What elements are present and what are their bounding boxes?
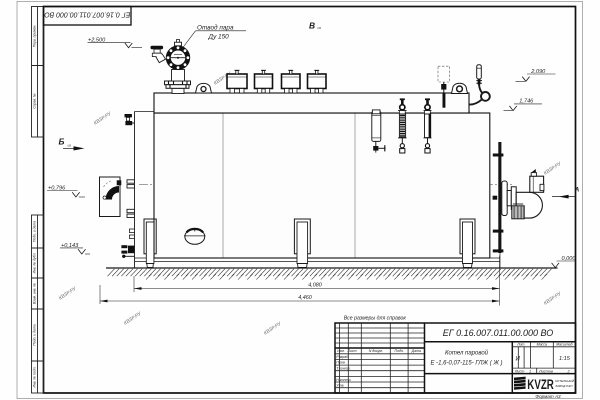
svg-text:Инв. № дубл.: Инв. № дубл. [32, 253, 36, 274]
svg-text:А: А [574, 186, 580, 193]
svg-text:KVZR: KVZR [527, 377, 554, 392]
svg-text:Н.контр.: Н.контр. [336, 378, 351, 382]
svg-text:Инв. № подл.: Инв. № подл. [32, 366, 36, 387]
svg-text:Утв.: Утв. [336, 383, 344, 387]
svg-text:Листов: Листов [538, 369, 553, 373]
svg-text:Дата: Дата [411, 349, 421, 353]
svg-text:И: И [516, 357, 521, 363]
svg-text:Пров.: Пров. [336, 361, 345, 365]
svg-text:Справ. №: Справ. № [32, 93, 36, 109]
svg-text:Подп. и дата: Подп. и дата [32, 324, 36, 345]
svg-text:Ду 150: Ду 150 [208, 34, 230, 41]
svg-text:КОТЕЛЬНЫЙ: КОТЕЛЬНЫЙ [555, 379, 575, 383]
svg-text:Перв. примен.: Перв. примен. [32, 25, 36, 48]
svg-text:Взам. инв. №: Взам. инв. № [32, 283, 36, 304]
svg-text:1:15: 1:15 [559, 356, 571, 362]
svg-text:1: 1 [529, 369, 531, 373]
svg-text:Подп. и дата: Подп. и дата [32, 221, 36, 242]
svg-text:Подп.: Подп. [395, 349, 404, 353]
svg-text:Лист: Лист [514, 369, 525, 373]
svg-text:4,080: 4,080 [308, 283, 322, 289]
svg-text:Масса: Масса [537, 343, 547, 347]
svg-text:Лист: Лист [346, 349, 356, 353]
svg-text:Б: Б [59, 137, 65, 147]
svg-text:Формат А3: Формат А3 [535, 394, 561, 399]
svg-text:В: В [309, 21, 315, 31]
svg-text:Разраб.: Разраб. [336, 355, 349, 359]
svg-text:Е -1,6-0,07-115- ГЛЖ ( Ж ): Е -1,6-0,07-115- ГЛЖ ( Ж ) [430, 361, 502, 367]
svg-text:Т.контр.: Т.контр. [336, 366, 351, 370]
svg-text:4,460: 4,460 [298, 295, 312, 301]
svg-text:Масштаб: Масштаб [556, 343, 573, 347]
svg-text:ЕГ 0.16.007.011.00.000 ВО: ЕГ 0.16.007.011.00.000 ВО [44, 11, 131, 18]
svg-text:Отвод пара: Отвод пара [197, 23, 234, 31]
svg-text:Котел паровой: Котел паровой [445, 350, 489, 357]
svg-text:N докум.: N докум. [369, 349, 383, 353]
svg-text:Все размеры для справок: Все размеры для справок [344, 316, 407, 322]
svg-text:Изм.: Изм. [337, 349, 344, 353]
svg-text:ЕГ 0.16.007.011.00.000 ВО: ЕГ 0.16.007.011.00.000 ВО [443, 328, 554, 338]
svg-text:ЗАВОД РЭП: ЗАВОД РЭП [555, 384, 573, 388]
svg-text:Лит.: Лит. [516, 343, 525, 347]
